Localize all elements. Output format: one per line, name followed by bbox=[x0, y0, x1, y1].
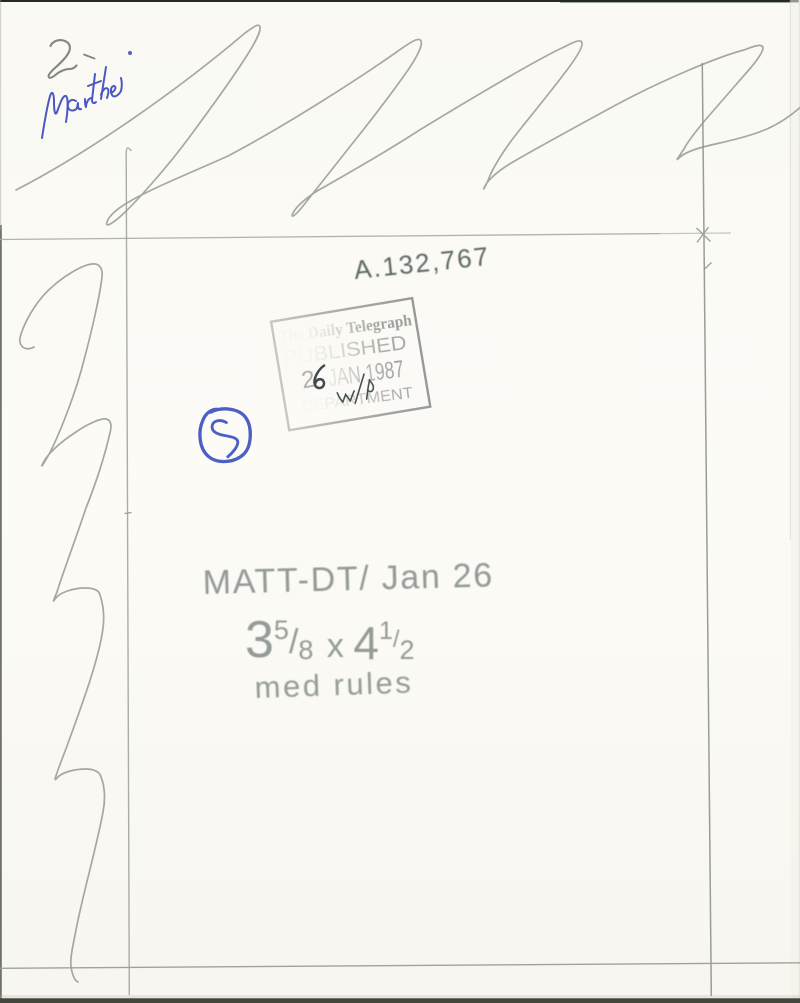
svg-text:MATT-DT/ Jan 26: MATT-DT/ Jan 26 bbox=[202, 556, 494, 602]
svg-text:med rules: med rules bbox=[254, 664, 414, 705]
